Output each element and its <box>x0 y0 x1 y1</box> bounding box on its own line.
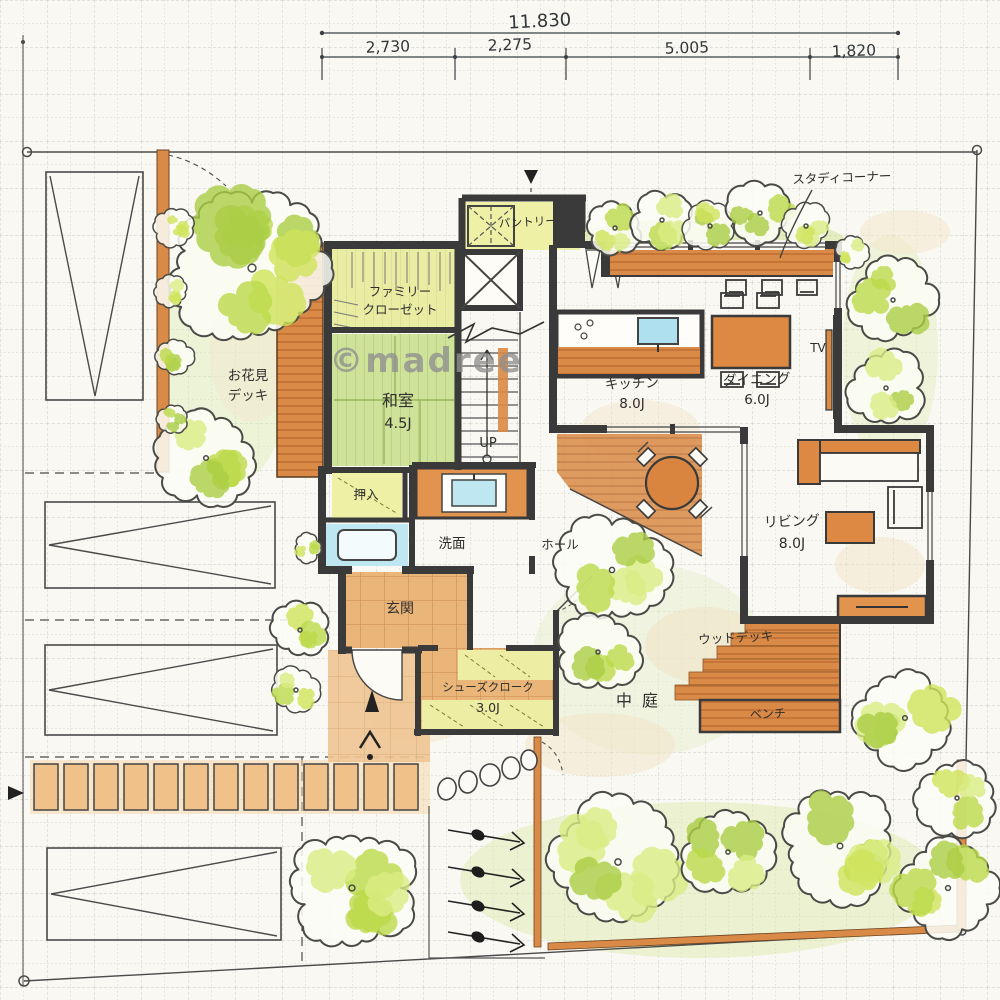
label-living-size: 8.0J <box>779 536 805 552</box>
label-kitchen: キッチン <box>605 375 660 393</box>
label-washitsu: 和室 <box>382 391 414 410</box>
label-family-closet-1: ファミリー <box>369 284 432 299</box>
label-shoes-2: 3.0J <box>476 700 500 715</box>
label-family-closet-2: クローゼット <box>362 302 437 317</box>
tree <box>630 191 692 250</box>
tree <box>290 836 416 947</box>
kitchen-island <box>556 312 702 376</box>
label-dining-size: 6.0J <box>744 392 769 408</box>
dim-segment: 5.005 <box>664 38 709 58</box>
label-oshiire: 押入 <box>353 487 379 502</box>
label-living: リビング <box>764 513 821 531</box>
coffee-table <box>826 512 874 543</box>
watermark: ©madree <box>329 341 523 381</box>
label-shoes-1: シューズクローク <box>442 680 533 694</box>
gate-post <box>534 737 541 947</box>
entry-dot <box>367 754 373 760</box>
tv-panel <box>826 330 832 410</box>
label-hanami-deck-2: デッキ <box>228 387 269 404</box>
label-genkan: 玄関 <box>386 600 414 617</box>
label-washitsu-size: 4.5J <box>384 416 411 432</box>
vanity <box>416 468 528 518</box>
label-tv: TV <box>809 341 826 355</box>
label-bench: ベンチ <box>750 706 786 721</box>
label-dining: ダイニング <box>723 371 791 389</box>
tree <box>156 405 187 433</box>
label-courtyard: 中庭 <box>616 691 668 710</box>
shoes-shelf-top <box>458 650 554 680</box>
floor-plan-page: ©madree スタディコーナー パントリー ファミリー クローゼット お花見 … <box>0 0 1000 1000</box>
sofa <box>798 440 920 484</box>
floor-plan-canvas: ©madree スタディコーナー パントリー ファミリー クローゼット お花見 … <box>0 0 1000 1000</box>
label-hanami-deck-1: お花見 <box>228 368 269 384</box>
label-kitchen-size: 8.0J <box>619 396 644 412</box>
label-senmen: 洗面 <box>439 536 466 552</box>
label-up: UP <box>479 436 497 451</box>
label-hall: ホール <box>541 537 579 552</box>
dim-segment: 2,730 <box>365 37 410 57</box>
dim-segment: 2,275 <box>487 35 532 55</box>
bathtub <box>338 530 396 560</box>
dim-segment: 1,820 <box>831 41 876 61</box>
kitchen-sink <box>638 318 678 344</box>
dim-total: 11.830 <box>508 9 572 33</box>
